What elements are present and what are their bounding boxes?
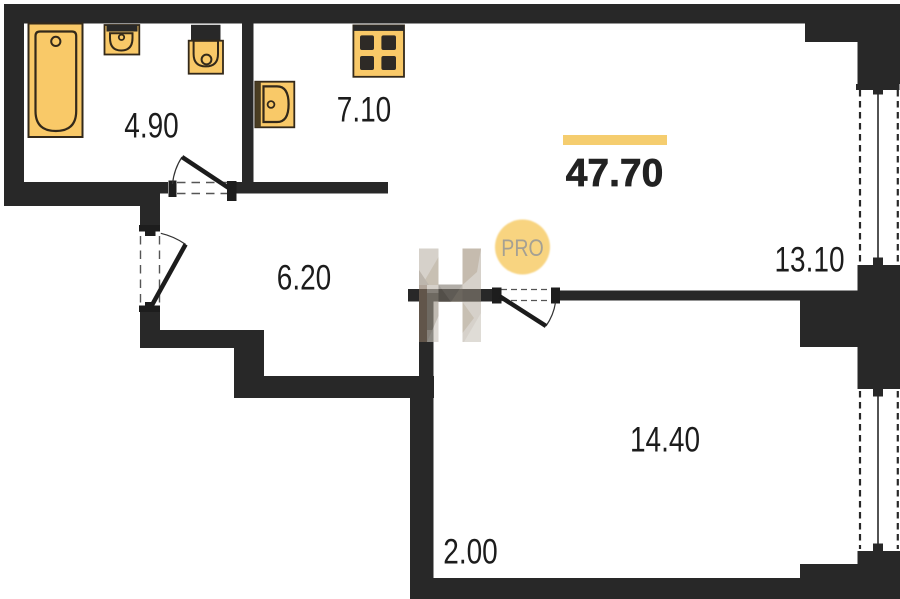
svg-text:14.40: 14.40	[630, 419, 700, 459]
svg-text:7.10: 7.10	[337, 89, 391, 129]
svg-text:13.10: 13.10	[774, 239, 844, 279]
svg-text:4.90: 4.90	[124, 105, 178, 145]
svg-text:47.70: 47.70	[566, 152, 664, 195]
svg-text:PRO: PRO	[501, 234, 543, 262]
svg-text:6.20: 6.20	[277, 257, 331, 297]
svg-text:2.00: 2.00	[443, 531, 497, 571]
